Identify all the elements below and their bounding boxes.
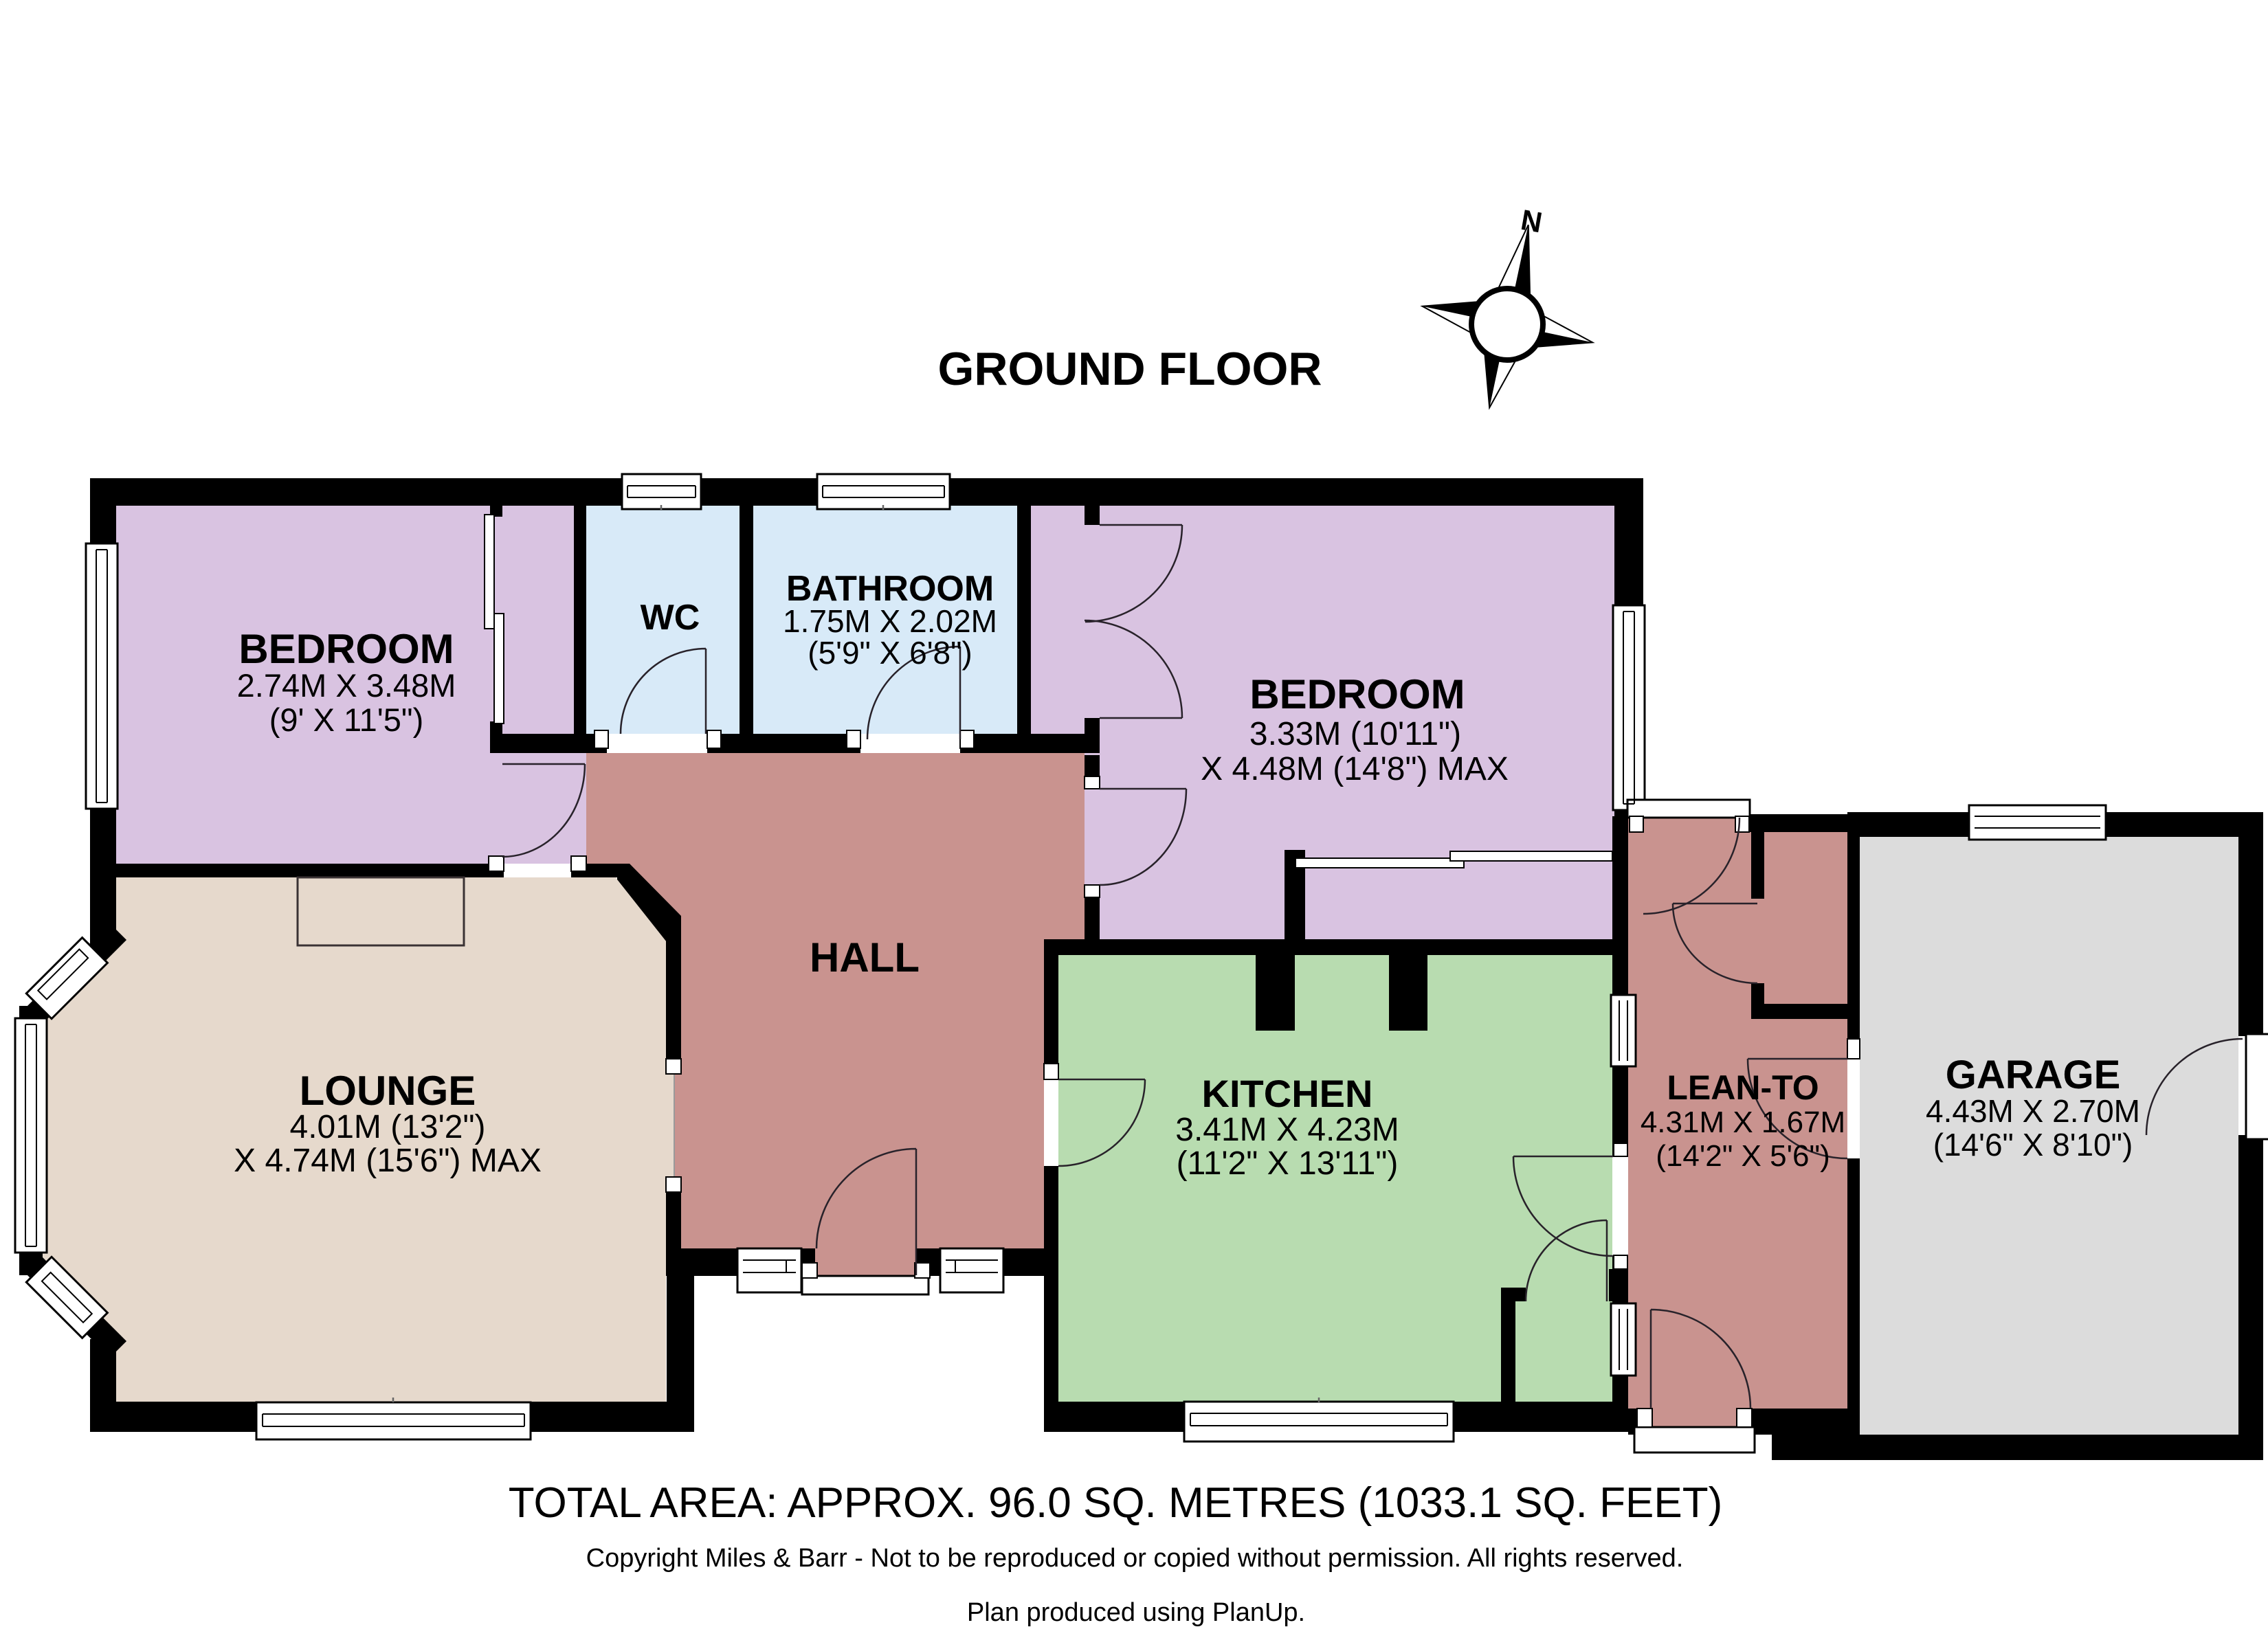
svg-text:Plan produced using PlanUp.: Plan produced using PlanUp. (967, 1598, 1305, 1627)
svg-text:(11'2" X 13'11"): (11'2" X 13'11") (1177, 1145, 1399, 1182)
svg-text:LOUNGE: LOUNGE (300, 1068, 476, 1114)
svg-text:3.41M X 4.23M: 3.41M X 4.23M (1175, 1112, 1399, 1148)
svg-text:3.33M (10'11"): 3.33M (10'11") (1249, 716, 1461, 752)
svg-text:(14'2" X 5'6"): (14'2" X 5'6") (1656, 1139, 1830, 1173)
svg-text:4.01M (13'2"): 4.01M (13'2") (290, 1109, 486, 1145)
svg-text:GROUND FLOOR: GROUND FLOOR (937, 343, 1322, 395)
svg-text:LEAN-TO: LEAN-TO (1667, 1068, 1819, 1107)
svg-text:Copyright Miles & Barr - Not t: Copyright Miles & Barr - Not to be repro… (586, 1544, 1684, 1573)
svg-text:4.31M X 1.67M: 4.31M X 1.67M (1641, 1106, 1845, 1139)
svg-text:X 4.48M (14'8") MAX: X 4.48M (14'8") MAX (1201, 751, 1509, 787)
svg-text:4.43M X 2.70M: 4.43M X 2.70M (1926, 1093, 2140, 1129)
svg-text:KITCHEN: KITCHEN (1202, 1072, 1373, 1115)
svg-text:(14'6" X 8'10"): (14'6" X 8'10") (1933, 1127, 2133, 1163)
svg-text:WC: WC (641, 598, 700, 638)
svg-text:BEDROOM: BEDROOM (1249, 671, 1465, 717)
svg-text:GARAGE: GARAGE (1946, 1053, 2121, 1097)
svg-text:TOTAL AREA: APPROX. 96.0 SQ. M: TOTAL AREA: APPROX. 96.0 SQ. METRES (103… (509, 1479, 1722, 1527)
svg-text:1.75M X 2.02M: 1.75M X 2.02M (783, 603, 997, 639)
svg-text:(9' X 11'5"): (9' X 11'5") (269, 702, 423, 738)
svg-text:BEDROOM: BEDROOM (238, 626, 454, 672)
svg-text:2.74M X 3.48M: 2.74M X 3.48M (237, 667, 456, 704)
svg-text:(5'9" X 6'8"): (5'9" X 6'8") (808, 635, 972, 671)
svg-text:X 4.74M (15'6") MAX: X 4.74M (15'6") MAX (234, 1143, 542, 1179)
svg-text:HALL: HALL (810, 934, 920, 980)
